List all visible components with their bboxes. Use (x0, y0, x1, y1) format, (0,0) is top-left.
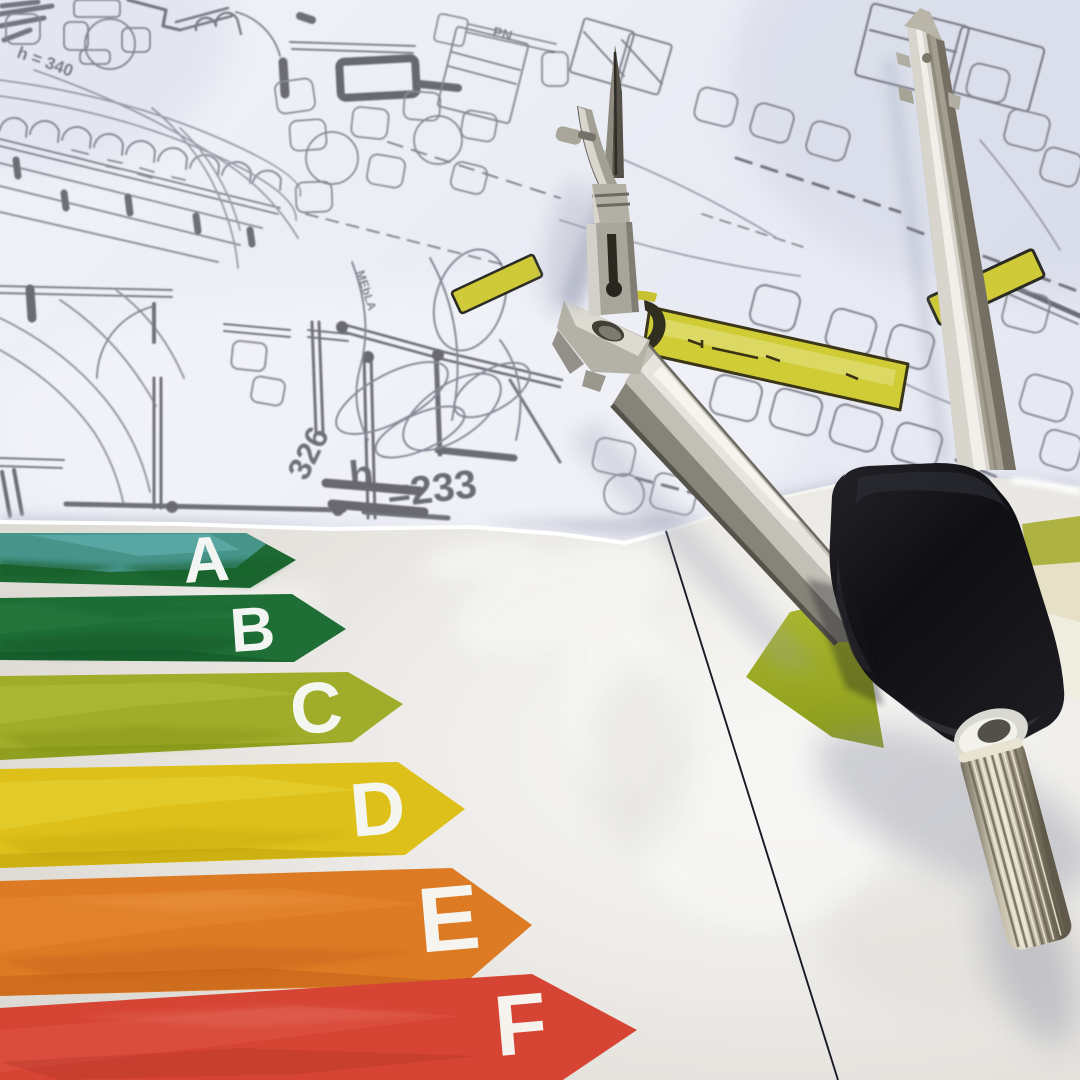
svg-text:F: F (490, 975, 551, 1075)
svg-text:A: A (180, 522, 231, 597)
svg-text:B: B (228, 594, 277, 666)
svg-text:D: D (347, 764, 409, 853)
svg-text:h: h (347, 452, 376, 498)
svg-text:E: E (414, 866, 484, 973)
svg-text:C: C (287, 666, 346, 750)
